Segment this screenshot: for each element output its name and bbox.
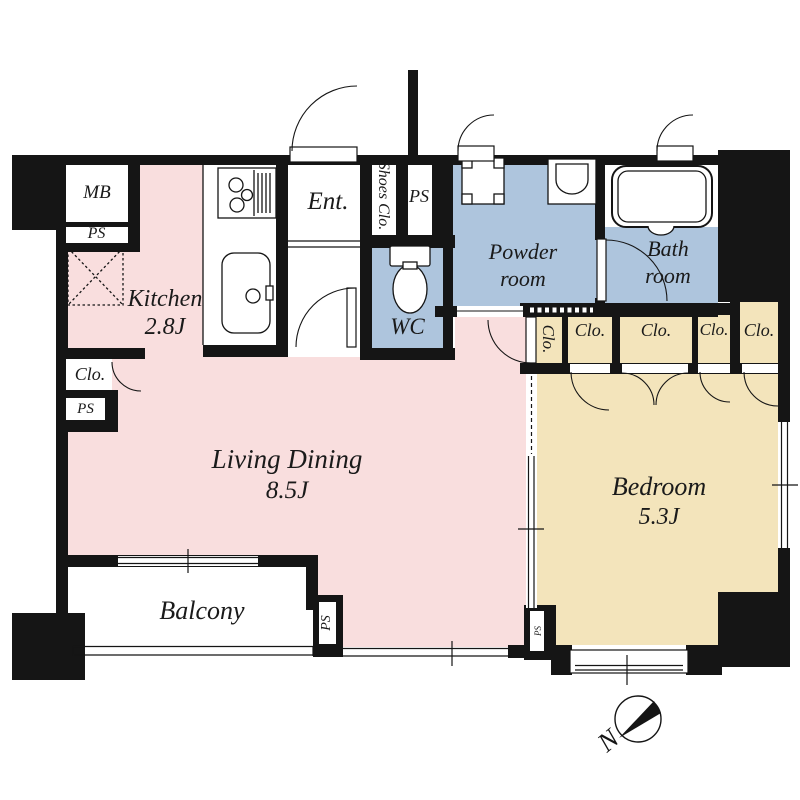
closet-4-door-swing [700,372,730,402]
closet-3-door-swing-right [656,373,688,405]
powder-room-label: Powder room [453,236,593,294]
compass-icon: N [591,696,661,758]
hall-door-swing [296,288,355,347]
entrance-label: Ent. [288,188,368,216]
closet-left-door-swing [112,362,141,391]
floor-plan: N MB PS Kitchen 2.8J Ent. Shoes Clo. PS … [0,0,800,800]
stove-icon [218,168,276,218]
washer-pan-icon [462,158,504,204]
closet-4-label: Clo. [698,318,730,342]
meter-box-label: MB [66,181,128,205]
pipe-space-balcony-label: PS [317,599,337,647]
shoes-closet-label: Shoes Clo. [373,138,393,254]
entrance-step-line [288,241,360,247]
pipe-space-left-label: PS [66,399,105,420]
closet-3-door-swing-left [622,373,654,405]
powder-window-leaf [458,146,494,161]
pipe-space-entrance-label: PS [396,184,442,208]
toilet-icon [390,246,430,313]
balcony-label: Balcony [122,596,282,626]
bedroom-label: Bedroom 5.3J [559,472,759,532]
closet-5-door-swing [744,372,778,406]
balcony-window-icon [118,549,258,573]
kitchen-label: Kitchen 2.8J [95,285,235,341]
closet-5-label: Clo. [740,318,778,342]
plan-linework: N [0,0,800,800]
closet-1-door-swing [488,320,531,363]
closet-1-label: Clo. [538,309,558,369]
bath-room-label: Bath room [600,233,736,291]
living-south-window-icon [342,641,512,666]
closet-1-door-leaf [526,317,536,363]
closet-2-label: Clo. [568,318,612,342]
closet-2-door-swing [571,372,609,410]
wc-label: WC [372,314,443,340]
bath-window-leaf [657,146,693,161]
partition-window-icon [518,456,544,608]
entrance-door-swing [292,86,357,151]
bedroom-east-window-icon [772,422,798,548]
bathtub-icon [612,166,712,235]
living-dining-label: Living Dining 8.5J [167,444,407,506]
closet-left-label: Clo. [68,362,112,386]
closet-3-label: Clo. [620,318,692,342]
balcony-railing-icon [73,646,313,656]
pipe-space-top-left-label: PS [66,224,127,244]
wash-basin-icon [548,159,596,204]
pipe-space-bedroom-label: PS [531,613,545,649]
hall-door-leaf [347,288,356,347]
entrance-door-leaf [290,147,357,162]
